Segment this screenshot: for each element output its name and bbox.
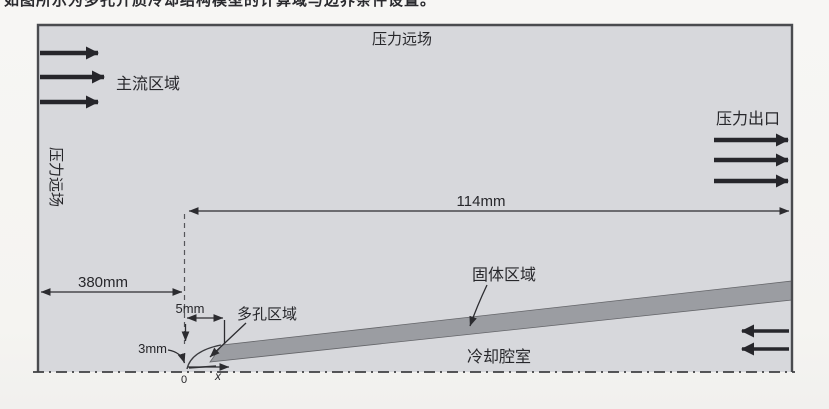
origin-label: 0 (181, 374, 187, 386)
dimension-label-114mm: 114mm (457, 193, 506, 210)
dimension-label-3mm: 3mm (138, 341, 167, 356)
label-main-flow-region: 主流区域 (116, 75, 180, 93)
dimension-label-5mm: 5mm (176, 301, 205, 316)
label-cooling-chamber: 冷却腔室 (467, 348, 531, 366)
domain-schematic: 114mm 380mm 5mm 3mm 0 x 压力远场 压力远场 主流区域 压… (0, 0, 829, 409)
dimension-label-380mm: 380mm (78, 274, 128, 291)
figure-computational-domain: 如图所示为多孔介质冷却结构模型的计算域与边界条件设置。 (0, 0, 829, 409)
x-axis-label: x (214, 369, 222, 383)
label-pressure-outlet: 压力出口 (716, 110, 780, 128)
label-solid-region: 固体区域 (472, 266, 536, 284)
label-pressure-far-field-left: 压力远场 (47, 147, 64, 207)
label-porous-region: 多孔区域 (237, 306, 297, 323)
label-pressure-far-field-top: 压力远场 (372, 31, 432, 48)
